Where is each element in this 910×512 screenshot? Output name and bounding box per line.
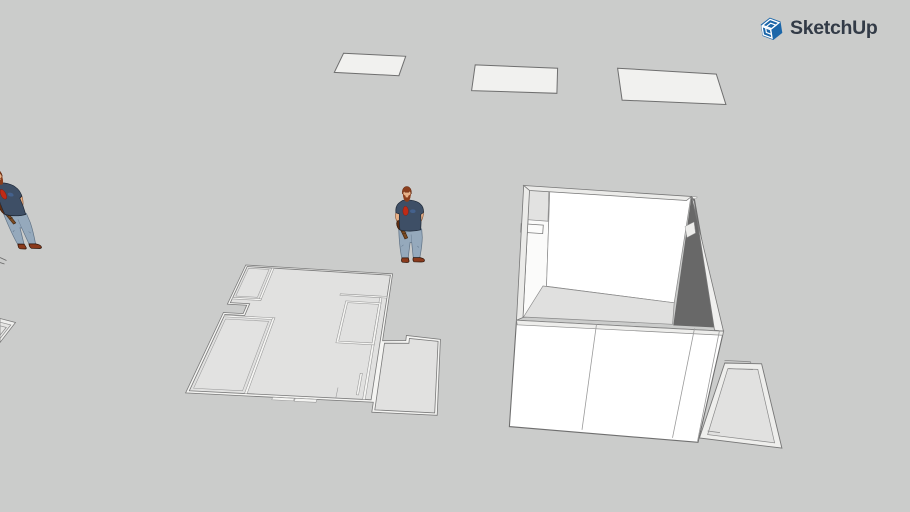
svg-text:SketchUp: SketchUp [790, 17, 878, 39]
